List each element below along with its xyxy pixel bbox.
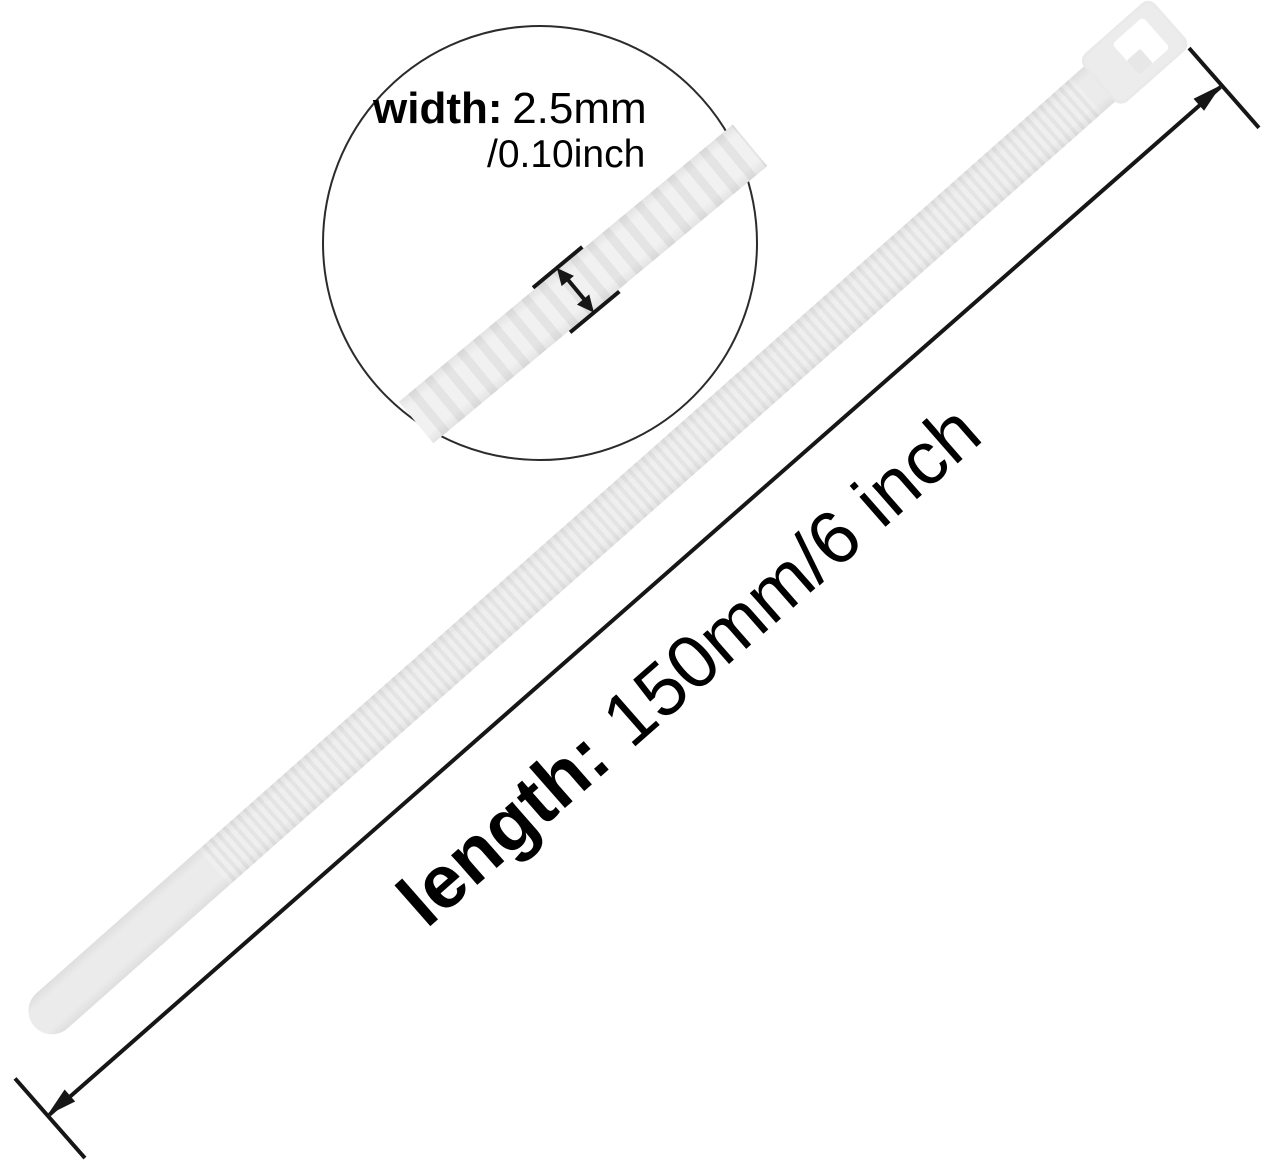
width-value: 2.5mm: [512, 84, 646, 133]
diagram-canvas: width:2.5mm /0.10inch length:150mm/6 inc…: [0, 0, 1270, 1165]
width-callout-line1: width:2.5mm: [373, 85, 647, 133]
width-alt-value: /0.10inch: [487, 134, 645, 177]
length-label: length:: [381, 714, 624, 942]
length-value: 150mm/6 inch: [586, 388, 995, 762]
width-label: width:: [373, 84, 503, 133]
